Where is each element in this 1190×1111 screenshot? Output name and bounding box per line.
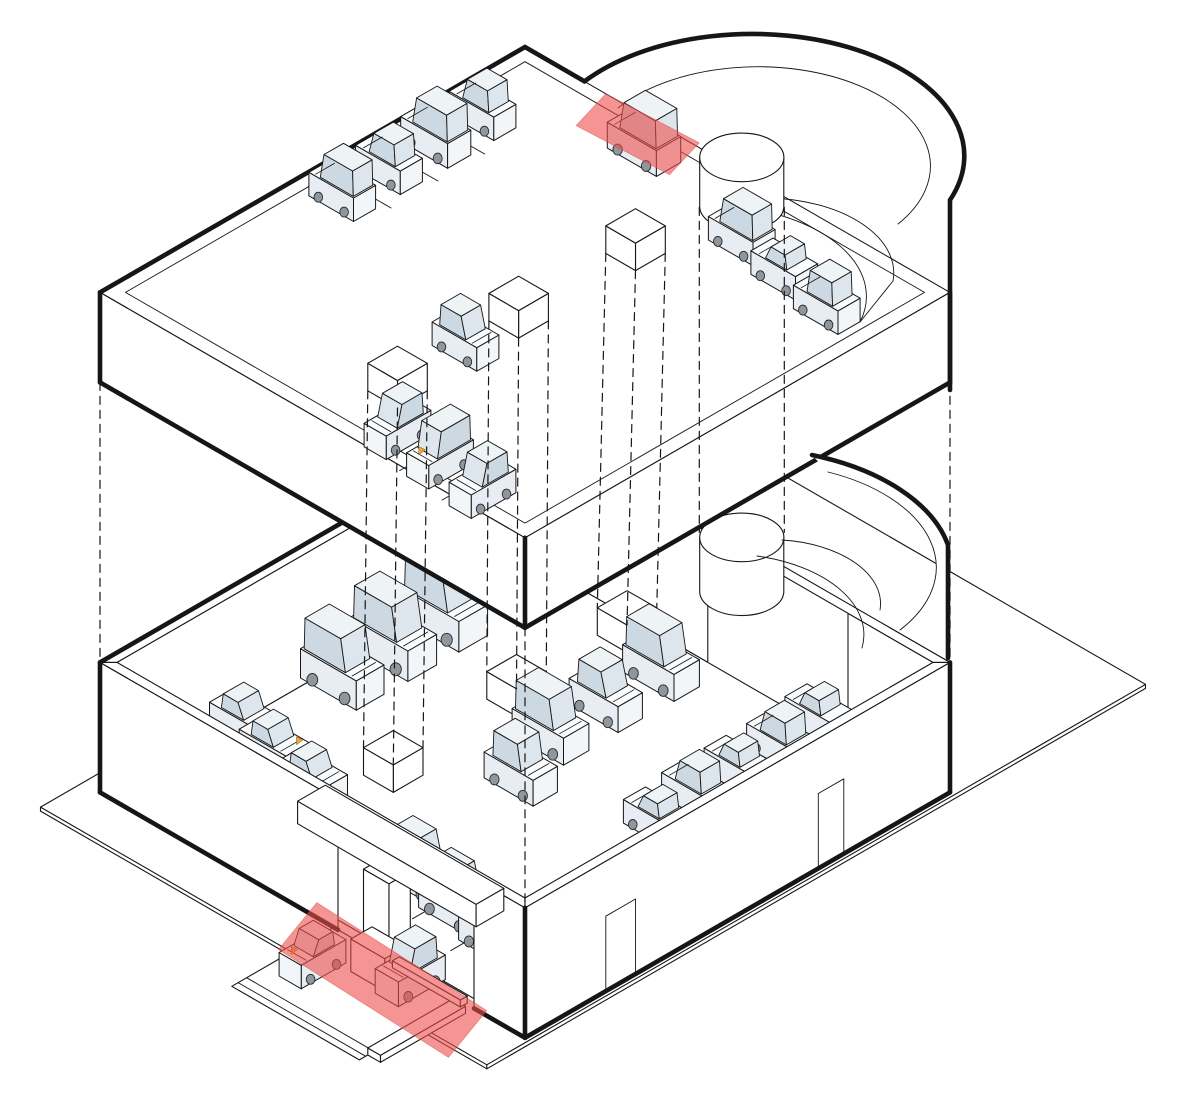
ramp-cylinder-lower — [700, 513, 784, 615]
car-wheel — [824, 320, 833, 330]
car-wheel — [575, 700, 584, 711]
car-wheel — [782, 286, 791, 296]
car-wheel — [464, 936, 473, 947]
car-wheel — [387, 180, 396, 190]
car-wheel — [548, 749, 558, 761]
car-wheel — [739, 251, 748, 261]
car-wheel — [463, 357, 472, 367]
car-wheel — [441, 633, 452, 646]
car-wheel — [714, 236, 723, 246]
axonometric-scene — [0, 0, 1190, 1111]
car-wheel — [339, 692, 350, 705]
car-wheel — [390, 663, 401, 676]
car-wheel — [799, 305, 808, 315]
car-wheel — [314, 192, 323, 202]
car-wheel — [756, 271, 765, 281]
car-wheel — [391, 445, 400, 455]
car-wheel — [307, 674, 318, 687]
car-wheel — [306, 974, 315, 984]
car-wheel — [433, 153, 442, 164]
car-wheel — [476, 504, 485, 514]
car-wheel — [502, 489, 511, 499]
car-wheel — [490, 774, 499, 785]
car-wheel — [425, 903, 435, 915]
car-wheel — [434, 475, 443, 485]
car-wheel — [437, 342, 446, 352]
car-wheel — [658, 685, 668, 697]
car-wheel — [603, 717, 612, 728]
car-wheel — [340, 207, 349, 217]
car-wheel — [629, 668, 639, 680]
car-wheel — [518, 790, 527, 801]
ramp-cylinder-upper-top — [700, 133, 784, 182]
car-wheel — [480, 126, 489, 136]
parking-garage-diagram — [0, 0, 1190, 1111]
car-wheel — [629, 820, 638, 830]
